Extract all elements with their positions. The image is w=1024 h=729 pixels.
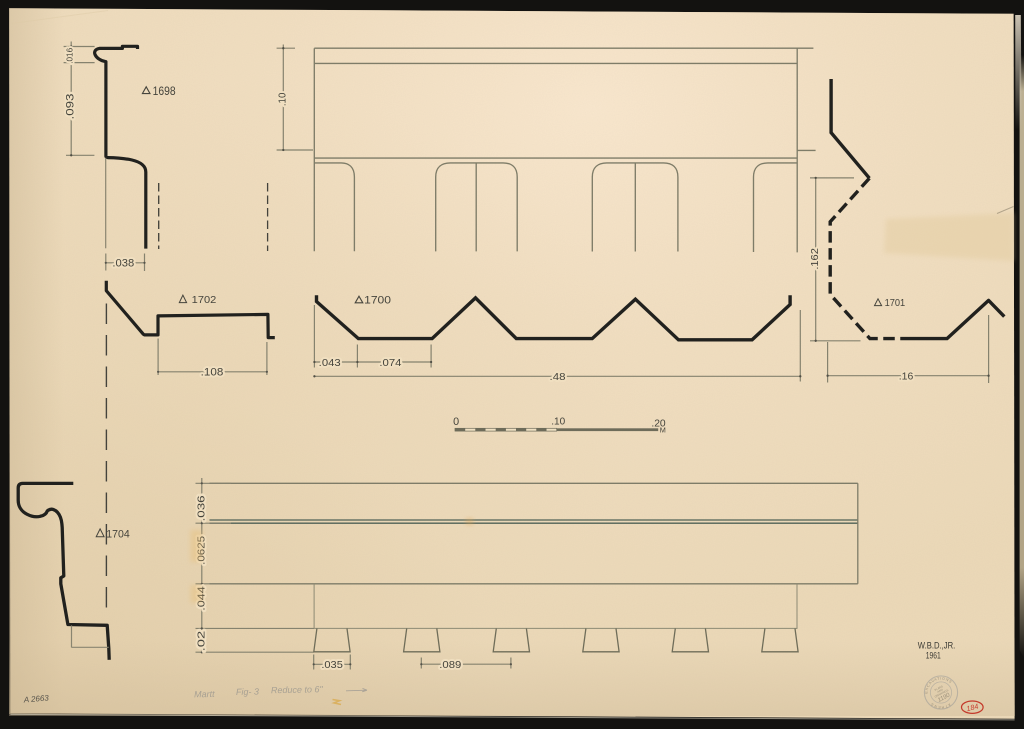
svg-text:.108: .108 [201,367,224,379]
svg-text:.16: .16 [899,371,914,383]
svg-text:Fig- 3: Fig- 3 [236,687,259,697]
svg-text:Reduce to 6": Reduce to 6" [271,684,324,695]
svg-text:.036: .036 [197,495,208,521]
svg-text:0: 0 [453,416,459,428]
svg-text:.043: .043 [319,357,341,369]
svg-text:1700: 1700 [364,295,391,307]
svg-text:.093: .093 [65,94,77,120]
svg-text:.038: .038 [112,258,134,270]
svg-text:.10: .10 [551,416,565,427]
svg-text:W.B.D.,JR.: W.B.D.,JR. [918,641,956,651]
svg-text:1701: 1701 [885,298,906,309]
svg-text:1698: 1698 [153,84,176,98]
svg-text:.089: .089 [439,659,461,671]
svg-text:1961: 1961 [926,650,941,660]
svg-text:.02: .02 [197,630,208,651]
svg-text:1702: 1702 [192,294,217,306]
svg-text:Martt: Martt [194,689,215,699]
svg-text:.035: .035 [321,659,343,671]
svg-text:.016: .016 [65,48,74,64]
svg-text:.074: .074 [379,357,401,369]
svg-text:M: M [660,425,666,434]
svg-text:1704: 1704 [106,528,129,540]
svg-text:.162: .162 [810,248,821,270]
svg-text:.10: .10 [278,92,289,106]
svg-text:.48: .48 [550,371,566,383]
